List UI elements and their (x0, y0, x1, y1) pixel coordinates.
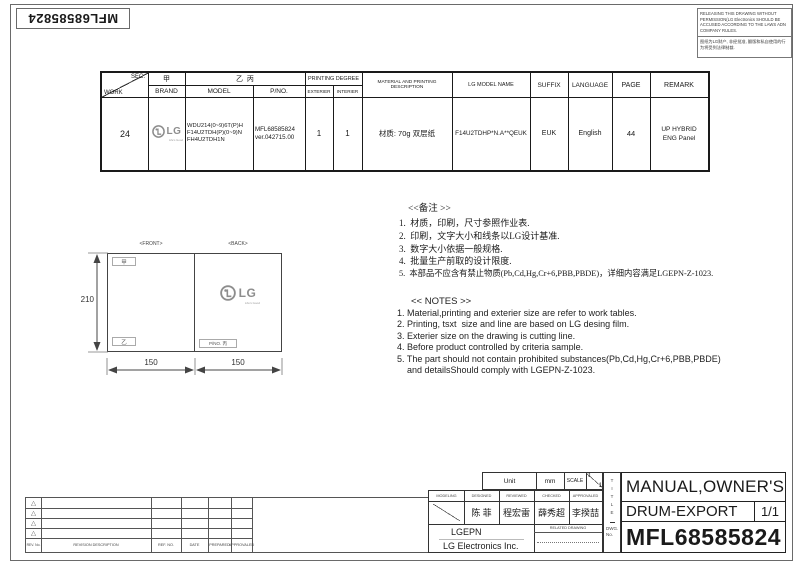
remark-header: REMARK (650, 73, 708, 97)
revision-triangle-icon: △ (26, 528, 41, 538)
interier-value: 1 (333, 97, 362, 170)
lg-logo-tagline: Life's Good (169, 138, 183, 142)
printing-degree-header: PRINTING DEGREE (305, 73, 362, 85)
language-header: LANGUAGE (568, 73, 612, 97)
notes-cn-item: 5. 本部品不应含有禁止物质(Pb,Cd,Hg,Cr+6,PBB,PBDE)，详… (399, 268, 729, 281)
revision-triangle-icon: △ (26, 498, 41, 508)
language-value: English (568, 97, 612, 170)
pno-line-2: ver.042715.00 (255, 134, 305, 142)
notes-cn-item: 2. 印刷，文字大小和线条以LG设计基准. (399, 230, 729, 243)
scale-label: SCALE (564, 473, 586, 489)
dim-front-width-label: 150 (107, 358, 195, 367)
work-label: WORK (104, 90, 123, 96)
approvaled-name: 李揆喆 (569, 501, 602, 524)
exterier-value: 1 (305, 97, 333, 170)
approval-block: MODELING DESIGNED REVIEWED CHECKED APPRO… (428, 490, 603, 553)
title-vertical-label: TITLE (610, 473, 615, 523)
brand-cell: LG Life's Good (148, 97, 185, 170)
model-line-2: F14U2TDH(P)(0~9)N (187, 130, 252, 137)
related-drawing-label: RELATED DRAWING (534, 524, 602, 533)
revision-triangle-icon: △ (26, 518, 41, 528)
unit-value: mm (536, 473, 564, 489)
title-strip: TITLE DWG. No. (603, 472, 621, 553)
title-line-1: MANUAL,OWNER'S (622, 473, 785, 502)
dim-back-width-label: 150 (194, 358, 282, 367)
notes-en-item: 3. Exterier size on the drawing is cutti… (397, 331, 742, 342)
revision-table: △ △ △ △ REV. No. REVISION DESCRIPTION RE… (25, 497, 253, 553)
lg-model-name-header: LG MODEL NAME (452, 73, 530, 97)
page-header: PAGE (612, 73, 650, 97)
notes-cn-item: 1. 材质，印刷，尺寸参照作业表. (399, 217, 729, 230)
remark-line-1: UP HYBRID (661, 125, 696, 134)
notes-cn-item: 3. 数字大小依据一般规格. (399, 243, 729, 256)
release-notice-box: RELEASING THIS DRAWING WITHOUT PERMISSIO… (697, 8, 792, 58)
notes-cn-list: 1. 材质，印刷，尺寸参照作业表. 2. 印刷，文字大小和线条以LG设计基准. … (399, 217, 729, 281)
lg-seal-icon (152, 125, 165, 138)
page-value: 44 (612, 97, 650, 170)
pno-line-1: MFL68585824 (255, 126, 305, 134)
suffix-value: EUK (530, 97, 568, 170)
company-full: LG Electronics Inc. (443, 541, 519, 551)
remark-cell: UP HYBRID ENG Panel (650, 97, 708, 170)
approvaled-header: APPROVALED (231, 538, 252, 552)
rotated-doc-number: MFL68585824 (28, 11, 118, 26)
notes-en-item: 5. The part should not contain prohibite… (397, 354, 742, 365)
notes-cn-title: <<备注 >> (408, 200, 451, 214)
model-line-1: WDU214(0~9)6T(P)H (187, 123, 252, 130)
sec-label: SEC. (131, 74, 145, 80)
unit-scale-row: Unit mm SCALE 1 1 (482, 472, 603, 490)
related-drawing-cell: RELATED DRAWING (534, 524, 602, 552)
unit-label: Unit (483, 473, 536, 489)
work-value: 24 (102, 97, 148, 170)
company-short: LGEPN (451, 527, 482, 537)
notes-cn-item: 4. 批量生产前取的设计限度. (399, 255, 729, 268)
designed-header: DESIGNED (464, 491, 499, 501)
revision-triangle-icon: △ (26, 508, 41, 518)
notes-en-item-cont: and detailsShould comply with LGEPN-Z-10… (397, 365, 742, 376)
sec-work-header-cell: SEC. WORK (102, 73, 148, 97)
revision-description-header: REVISION DESCRIPTION (41, 538, 151, 552)
notes-en-title: << NOTES >> (411, 296, 471, 307)
pno-cell: MFL68585824 ver.042715.00 (255, 97, 305, 170)
no-label: No. (606, 532, 620, 538)
related-drawing-dotted-line (537, 542, 599, 543)
release-notice-en: RELEASING THIS DRAWING WITHOUT PERMISSIO… (698, 9, 791, 37)
brand-tag-header: 甲 (148, 73, 185, 85)
sheet-number: 1/1 (754, 502, 785, 521)
material-value: 材质: 70g 双层纸 (362, 97, 452, 170)
title-block: MANUAL,OWNER'S DRUM-EXPORT 1/1 MFL685858… (621, 472, 786, 553)
release-notice-cn: 图纸为LG财产, 非经批准, 翻版和私自使用的行为将受到法律制裁. (698, 37, 791, 57)
modeling-header: MODELING (429, 491, 464, 501)
brand-header: BRAND (148, 85, 185, 97)
dwg-no-cell: DWG. No. (604, 523, 620, 538)
interier-header: INTERIER (333, 85, 362, 97)
company-cell: LGEPN LG Electronics Inc. (429, 524, 534, 552)
model-cell: WDU214(0~9)6T(P)H F14U2TDH(P)(0~9)N FH4U… (186, 97, 252, 170)
reviewed-header: REVIEWED (499, 491, 534, 501)
model-header: MODEL (185, 85, 253, 97)
checked-header: CHECKED (534, 491, 569, 501)
dim-height-label: 210 (72, 295, 94, 304)
spec-table: SEC. WORK 甲 乙 丙 PRINTING DEGREE BRAND MO… (100, 71, 710, 172)
title-line-2: DRUM-EXPORT (622, 502, 754, 521)
model-tag-header: 乙 丙 (185, 73, 305, 85)
designed-name: 陈 菲 (464, 501, 499, 524)
material-header: MATERIAL AND PRINTING DESCRIPTION (362, 73, 452, 97)
pno-header: P/NO. (253, 85, 305, 97)
reviewed-name: 程宏雷 (499, 501, 534, 524)
suffix-header: SUFFIX (530, 73, 568, 97)
lg-logo-text: LG (167, 126, 182, 137)
notes-en-item: 1. Material,printing and exterier size a… (397, 308, 742, 319)
scale-fraction: 1 1 (586, 473, 604, 489)
model-line-3: FH4U2TDH1N (187, 137, 252, 144)
remark-line-2: ENG Panel (663, 134, 696, 143)
scale-denominator: 1 (599, 483, 602, 489)
modeling-slash (433, 504, 460, 521)
date-header: DATE (181, 538, 208, 552)
notes-en-item: 2. Printing, tsxt size and line are base… (397, 319, 742, 330)
ref-no-header: REF. NO. (151, 538, 181, 552)
rotated-doc-number-box: MFL68585824 (16, 8, 130, 29)
drawing-sheet: MFL68585824 RELEASING THIS DRAWING WITHO… (0, 0, 802, 567)
scale-numerator: 1 (588, 473, 591, 479)
notes-en-list: 1. Material,printing and exterier size a… (397, 308, 742, 376)
lg-model-name-value: F14U2TDHP*N.A**QEUK (452, 97, 530, 170)
exterier-header: EXTERIER (305, 85, 333, 97)
approvaled-header: APPROVALED (569, 491, 602, 501)
prepared-header: PREPARED (208, 538, 231, 552)
notes-en-item: 4. Before product controlled by criteria… (397, 342, 742, 353)
rev-no-header: REV. No. (26, 538, 41, 552)
checked-name: 薛秀超 (534, 501, 569, 524)
drawing-number: MFL68585824 (622, 522, 785, 552)
